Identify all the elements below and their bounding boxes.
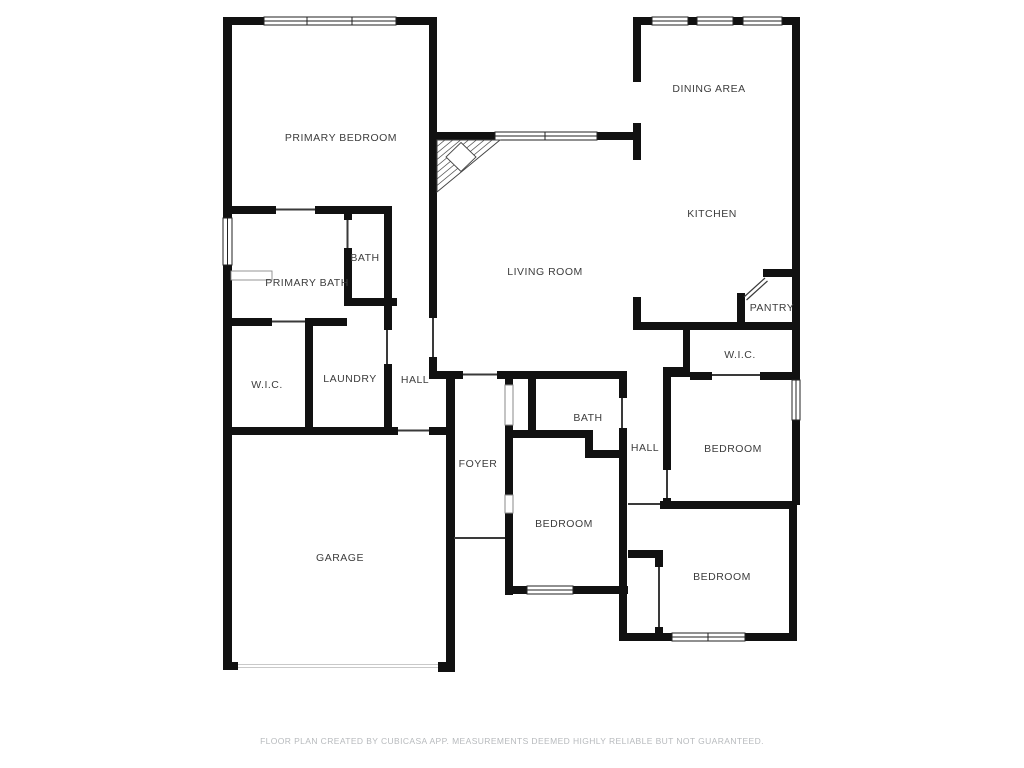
room-label-bedroom-center: BEDROOM [535, 518, 593, 530]
door-primary-bath [276, 209, 315, 211]
room-label-dining-area: DINING AREA [672, 83, 745, 95]
door-wic-right [712, 374, 760, 376]
door-pantry-leaf [747, 281, 768, 300]
room-label-bedroom-right: BEDROOM [704, 443, 762, 455]
door-bath-center [621, 398, 623, 428]
room-label-wic-right: W.I.C. [724, 349, 756, 361]
room-label-foyer: FOYER [459, 458, 498, 470]
room-label-bedroom-bottom: BEDROOM [693, 571, 751, 583]
room-label-hall-left: HALL [401, 374, 429, 386]
door-living-hall [432, 318, 434, 357]
room-label-primary-bedroom: PRIMARY BEDROOM [285, 132, 397, 144]
opening-bedroom-center [505, 495, 513, 513]
door-closet-bottom-bedroom [658, 567, 660, 627]
door-garage [398, 430, 429, 432]
room-label-wic-left: W.I.C. [251, 379, 283, 391]
door-wic-left [272, 321, 305, 323]
room-label-hall-right: HALL [631, 442, 659, 454]
door-front-entry [454, 537, 505, 539]
door-pantry [744, 278, 765, 297]
door-bedroom-bottom [628, 503, 660, 505]
room-label-primary-bath: PRIMARY BATH [265, 277, 349, 289]
room-label-pantry: PANTRY [750, 302, 795, 314]
room-label-garage: GARAGE [316, 552, 364, 564]
floor-plan-page: PRIMARY BEDROOM DINING AREA KITCHEN LIVI… [0, 0, 1024, 768]
door-bath-left [347, 220, 349, 248]
room-label-bath-center: BATH [573, 412, 602, 424]
room-label-living-room: LIVING ROOM [507, 266, 583, 278]
door-laundry [386, 330, 388, 364]
door-bedroom-right [666, 470, 668, 498]
room-label-laundry: LAUNDRY [323, 373, 377, 385]
room-label-kitchen: KITCHEN [687, 208, 737, 220]
door-foyer-top [463, 374, 497, 376]
room-label-bath-upper: BATH [350, 252, 379, 264]
disclaimer-text: FLOOR PLAN CREATED BY CUBICASA APP. MEAS… [0, 736, 1024, 746]
floor-plan-canvas: PRIMARY BEDROOM DINING AREA KITCHEN LIVI… [0, 0, 1024, 768]
staircase [435, 138, 505, 196]
opening-foyer [505, 385, 513, 425]
